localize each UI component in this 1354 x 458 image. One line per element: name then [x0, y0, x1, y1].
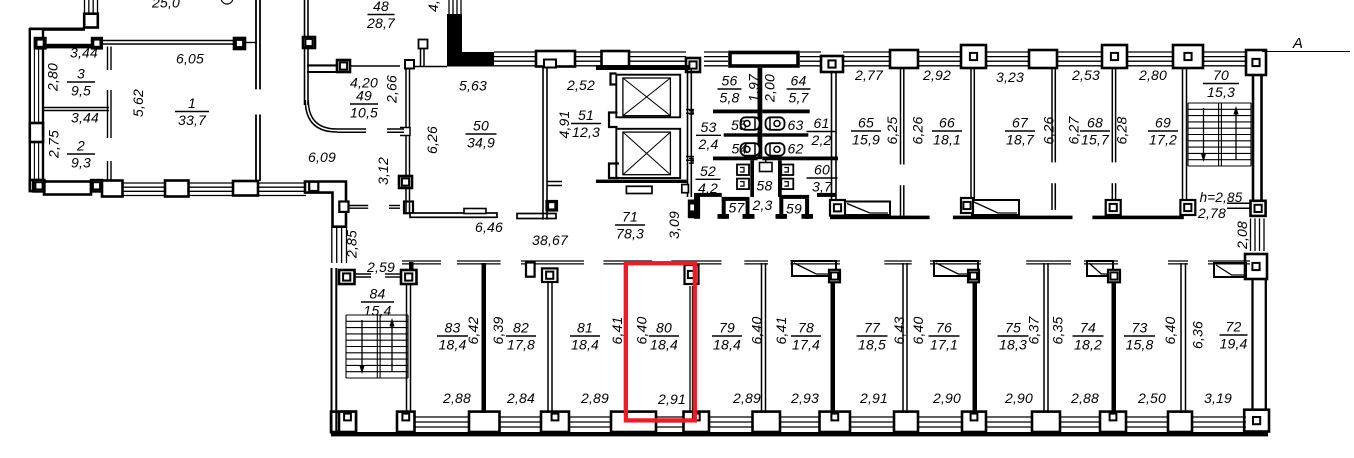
- svg-text:28,7: 28,7: [366, 15, 396, 31]
- svg-text:4,91: 4,91: [556, 110, 572, 138]
- svg-text:18,3: 18,3: [999, 337, 1027, 353]
- svg-text:3,19: 3,19: [1204, 390, 1232, 406]
- svg-text:57: 57: [729, 200, 746, 216]
- svg-text:3,44: 3,44: [71, 110, 99, 126]
- svg-text:61: 61: [814, 115, 830, 131]
- svg-text:34,9: 34,9: [467, 135, 495, 151]
- svg-text:2,52: 2,52: [566, 77, 595, 93]
- svg-text:3,12: 3,12: [375, 157, 391, 185]
- svg-text:6,40: 6,40: [910, 316, 926, 344]
- svg-text:81: 81: [577, 320, 593, 336]
- svg-text:2,80: 2,80: [1138, 67, 1167, 83]
- svg-text:63: 63: [788, 117, 804, 133]
- svg-text:3,23: 3,23: [996, 69, 1024, 85]
- svg-text:2,85: 2,85: [344, 230, 360, 259]
- svg-text:6,05: 6,05: [176, 51, 204, 67]
- svg-text:6,09: 6,09: [308, 149, 336, 165]
- svg-text:h=2,85: h=2,85: [1200, 190, 1243, 205]
- svg-text:A: A: [1292, 35, 1303, 52]
- svg-text:1: 1: [188, 95, 196, 111]
- svg-text:60: 60: [814, 162, 830, 178]
- svg-text:15,4: 15,4: [363, 303, 391, 319]
- svg-text:80: 80: [656, 320, 672, 336]
- svg-text:78: 78: [798, 320, 814, 336]
- svg-text:6,36: 6,36: [1190, 321, 1206, 349]
- svg-text:73: 73: [1132, 320, 1148, 336]
- svg-text:54: 54: [732, 141, 748, 157]
- svg-text:49: 49: [356, 88, 372, 104]
- svg-text:64: 64: [791, 73, 807, 89]
- svg-text:67: 67: [1012, 115, 1029, 131]
- svg-text:2,91: 2,91: [657, 391, 686, 407]
- svg-text:56: 56: [722, 73, 738, 89]
- svg-text:6,25: 6,25: [884, 116, 900, 144]
- svg-text:15,9: 15,9: [852, 132, 880, 148]
- svg-text:18,4: 18,4: [713, 337, 741, 353]
- svg-text:15,7: 15,7: [1081, 132, 1110, 148]
- svg-text:84: 84: [370, 286, 386, 302]
- svg-text:3: 3: [77, 66, 85, 82]
- svg-text:6,41: 6,41: [773, 316, 789, 344]
- svg-text:6,37: 6,37: [1026, 315, 1042, 344]
- svg-text:33,7: 33,7: [178, 112, 207, 128]
- svg-text:2,90: 2,90: [932, 390, 961, 406]
- svg-text:18,2: 18,2: [1074, 337, 1102, 353]
- svg-text:2,84: 2,84: [506, 390, 535, 406]
- svg-text:65: 65: [858, 115, 874, 131]
- svg-text:3,7: 3,7: [812, 179, 833, 195]
- svg-text:2,3: 2,3: [751, 197, 772, 213]
- svg-text:2,90: 2,90: [1004, 390, 1033, 406]
- svg-text:18,4: 18,4: [571, 337, 599, 353]
- svg-text:1,97: 1,97: [746, 73, 762, 102]
- svg-text:6,26: 6,26: [1041, 116, 1057, 144]
- svg-text:15,8: 15,8: [1125, 337, 1153, 353]
- svg-text:53: 53: [701, 119, 717, 135]
- svg-text:6,28: 6,28: [1114, 116, 1130, 144]
- svg-text:6,26: 6,26: [424, 126, 440, 154]
- svg-text:9,3: 9,3: [71, 155, 91, 171]
- svg-text:58: 58: [757, 178, 773, 194]
- svg-text:6,40: 6,40: [1162, 316, 1178, 344]
- svg-text:6,35: 6,35: [1050, 316, 1066, 344]
- svg-text:17,1: 17,1: [930, 337, 958, 353]
- svg-text:5,8: 5,8: [719, 90, 739, 106]
- svg-text:6,39: 6,39: [490, 316, 506, 344]
- svg-text:9,5: 9,5: [71, 83, 91, 99]
- svg-text:18,4: 18,4: [438, 337, 466, 353]
- svg-text:15,3: 15,3: [1207, 84, 1235, 100]
- svg-text:18,5: 18,5: [858, 337, 886, 353]
- svg-text:71: 71: [622, 209, 638, 225]
- svg-text:6,27: 6,27: [1066, 115, 1082, 144]
- svg-text:12,3: 12,3: [572, 124, 600, 140]
- svg-text:6,43: 6,43: [891, 316, 907, 344]
- svg-text:2,89: 2,89: [732, 390, 761, 406]
- svg-text:5,7: 5,7: [788, 90, 809, 106]
- svg-text:50: 50: [473, 118, 489, 134]
- svg-text:82: 82: [513, 320, 529, 336]
- svg-text:76: 76: [936, 320, 952, 336]
- svg-text:52: 52: [700, 163, 716, 179]
- svg-text:38,67: 38,67: [532, 232, 569, 248]
- svg-text:2,78: 2,78: [1197, 205, 1226, 221]
- svg-text:2,50: 2,50: [1137, 390, 1166, 406]
- svg-text:2,88: 2,88: [442, 390, 471, 406]
- svg-text:19,4: 19,4: [1219, 336, 1247, 352]
- svg-text:6,40: 6,40: [749, 316, 765, 344]
- svg-text:2,77: 2,77: [854, 67, 884, 83]
- svg-text:6,42: 6,42: [465, 316, 481, 344]
- svg-text:79: 79: [719, 320, 735, 336]
- svg-text:68: 68: [1087, 115, 1103, 131]
- svg-text:66: 66: [939, 115, 955, 131]
- svg-text:2,4: 2,4: [697, 136, 718, 152]
- svg-text:3,09: 3,09: [666, 211, 682, 239]
- svg-text:17,8: 17,8: [507, 337, 535, 353]
- svg-text:2,2: 2,2: [810, 132, 831, 148]
- svg-text:77: 77: [864, 320, 881, 336]
- svg-text:2,91: 2,91: [859, 390, 888, 406]
- svg-text:5,62: 5,62: [130, 89, 146, 117]
- svg-text:69: 69: [1155, 115, 1171, 131]
- svg-text:6,46: 6,46: [475, 219, 503, 235]
- svg-text:78,3: 78,3: [616, 226, 644, 242]
- svg-text:17,2: 17,2: [1149, 132, 1177, 148]
- svg-text:2,53: 2,53: [1071, 67, 1100, 83]
- svg-text:2,88: 2,88: [1070, 390, 1099, 406]
- svg-text:51: 51: [578, 107, 594, 123]
- svg-text:2,89: 2,89: [580, 390, 609, 406]
- svg-text:72: 72: [1226, 319, 1242, 335]
- svg-text:83: 83: [445, 320, 461, 336]
- svg-text:2,93: 2,93: [790, 390, 819, 406]
- svg-text:5,63: 5,63: [459, 78, 487, 94]
- svg-text:55: 55: [731, 117, 747, 133]
- svg-text:2: 2: [76, 138, 85, 154]
- svg-text:6,40: 6,40: [634, 316, 650, 344]
- svg-text:2,66: 2,66: [384, 75, 400, 104]
- svg-text:3,44: 3,44: [70, 45, 98, 61]
- svg-text:6,26: 6,26: [910, 116, 926, 144]
- svg-text:4,2: 4,2: [698, 180, 718, 196]
- svg-text:2,08: 2,08: [1234, 221, 1250, 250]
- svg-text:18,1: 18,1: [933, 132, 961, 148]
- svg-text:25,0: 25,0: [151, 0, 180, 11]
- svg-text:10,5: 10,5: [350, 105, 378, 121]
- svg-text:17,4: 17,4: [792, 337, 820, 353]
- svg-text:2,00: 2,00: [762, 74, 778, 103]
- svg-text:2,80: 2,80: [45, 63, 61, 92]
- svg-text:75: 75: [1005, 320, 1021, 336]
- svg-text:2,59: 2,59: [366, 259, 395, 275]
- svg-text:18,4: 18,4: [650, 337, 678, 353]
- svg-text:2,75: 2,75: [46, 130, 62, 159]
- svg-text:48: 48: [373, 0, 389, 14]
- svg-text:59: 59: [786, 201, 802, 217]
- svg-text:62: 62: [788, 141, 804, 157]
- svg-text:2,92: 2,92: [922, 67, 951, 83]
- svg-text:18,7: 18,7: [1006, 132, 1035, 148]
- svg-text:4,: 4,: [425, 0, 441, 12]
- svg-text:70: 70: [1213, 67, 1229, 83]
- svg-text:6,41: 6,41: [609, 316, 625, 344]
- svg-text:74: 74: [1080, 320, 1096, 336]
